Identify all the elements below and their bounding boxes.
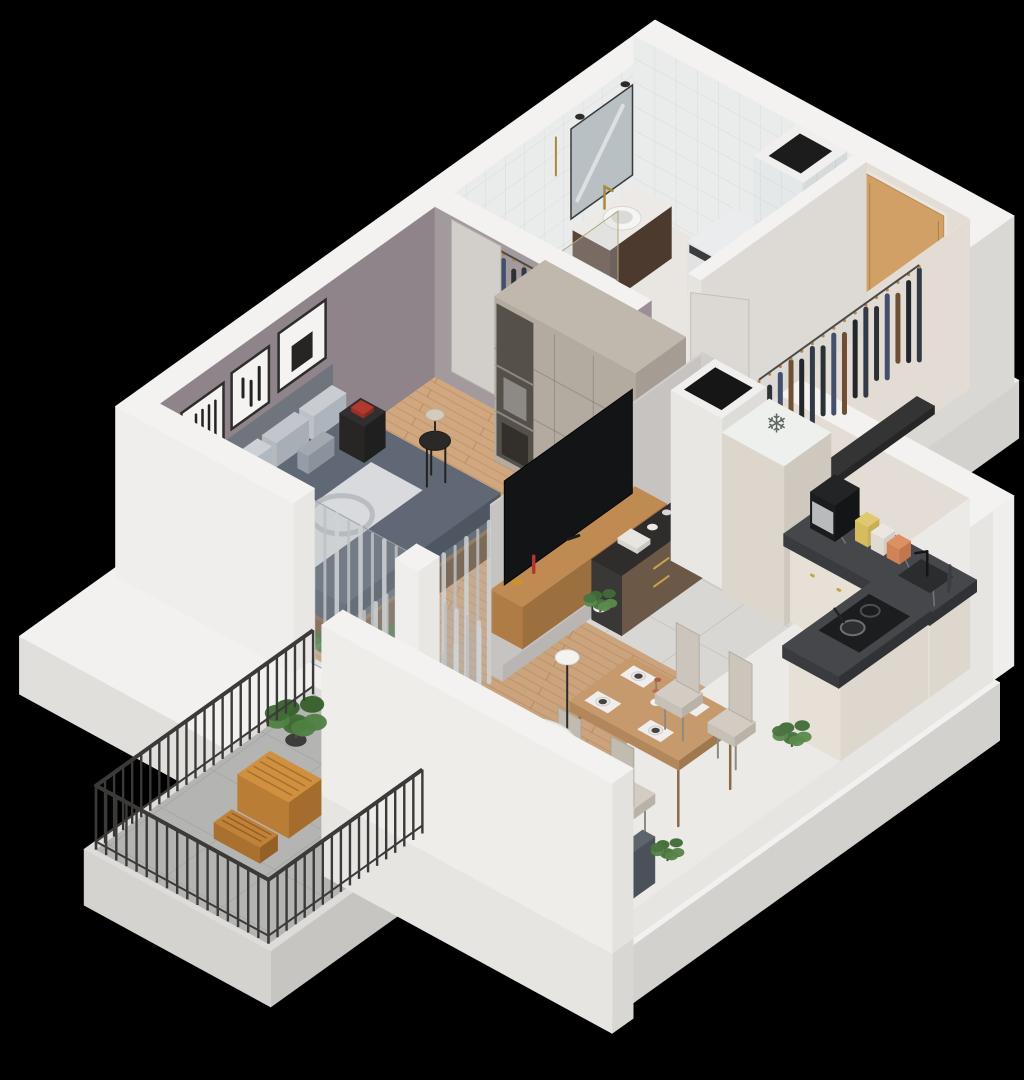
plate-food <box>599 699 607 704</box>
flower-bloom <box>654 678 661 682</box>
chair-back <box>676 623 699 694</box>
sideboard-vase-gray <box>662 509 672 515</box>
sideboard-vase-cream <box>647 524 658 531</box>
table-lamp-shade <box>426 409 445 421</box>
isometric-floorplan-svg: ❄ <box>0 0 1024 1080</box>
mirror-sconce-1 <box>621 81 631 87</box>
closet-sliding-door <box>452 219 501 398</box>
console-amber-vase <box>512 578 524 585</box>
plate-food <box>634 674 642 679</box>
apartment-scene: ❄ <box>19 20 1018 1033</box>
mirror-sconce-2 <box>575 114 585 120</box>
plate-food <box>651 728 659 733</box>
floorplan-image: ❄ <box>0 0 1024 1080</box>
chair-back <box>729 652 752 723</box>
counter-bottles <box>949 566 950 591</box>
floor-lamp-globe <box>555 650 579 665</box>
snowflake-icon: ❄ <box>766 410 788 440</box>
svg-text:❄: ❄ <box>766 410 788 440</box>
